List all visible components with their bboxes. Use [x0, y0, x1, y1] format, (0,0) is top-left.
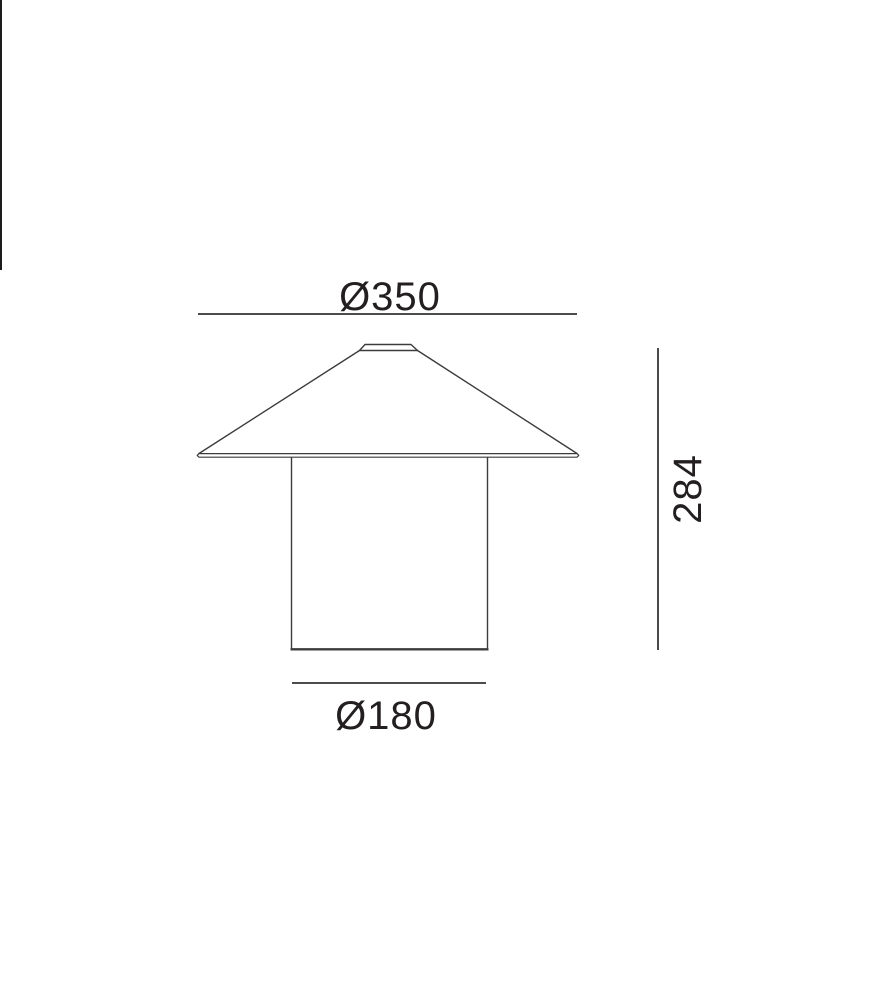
- body-diameter-label: Ø180: [335, 694, 437, 738]
- shade-diameter-label: Ø350: [339, 275, 441, 319]
- shade-rim: [197, 454, 579, 458]
- height-label: 284: [666, 454, 710, 524]
- lamp-dimension-drawing: Ø350 Ø180 284: [0, 0, 872, 1004]
- drawing-canvas: Ø350 Ø180 284: [0, 0, 872, 1004]
- lamp-shade-outline: [199, 345, 577, 454]
